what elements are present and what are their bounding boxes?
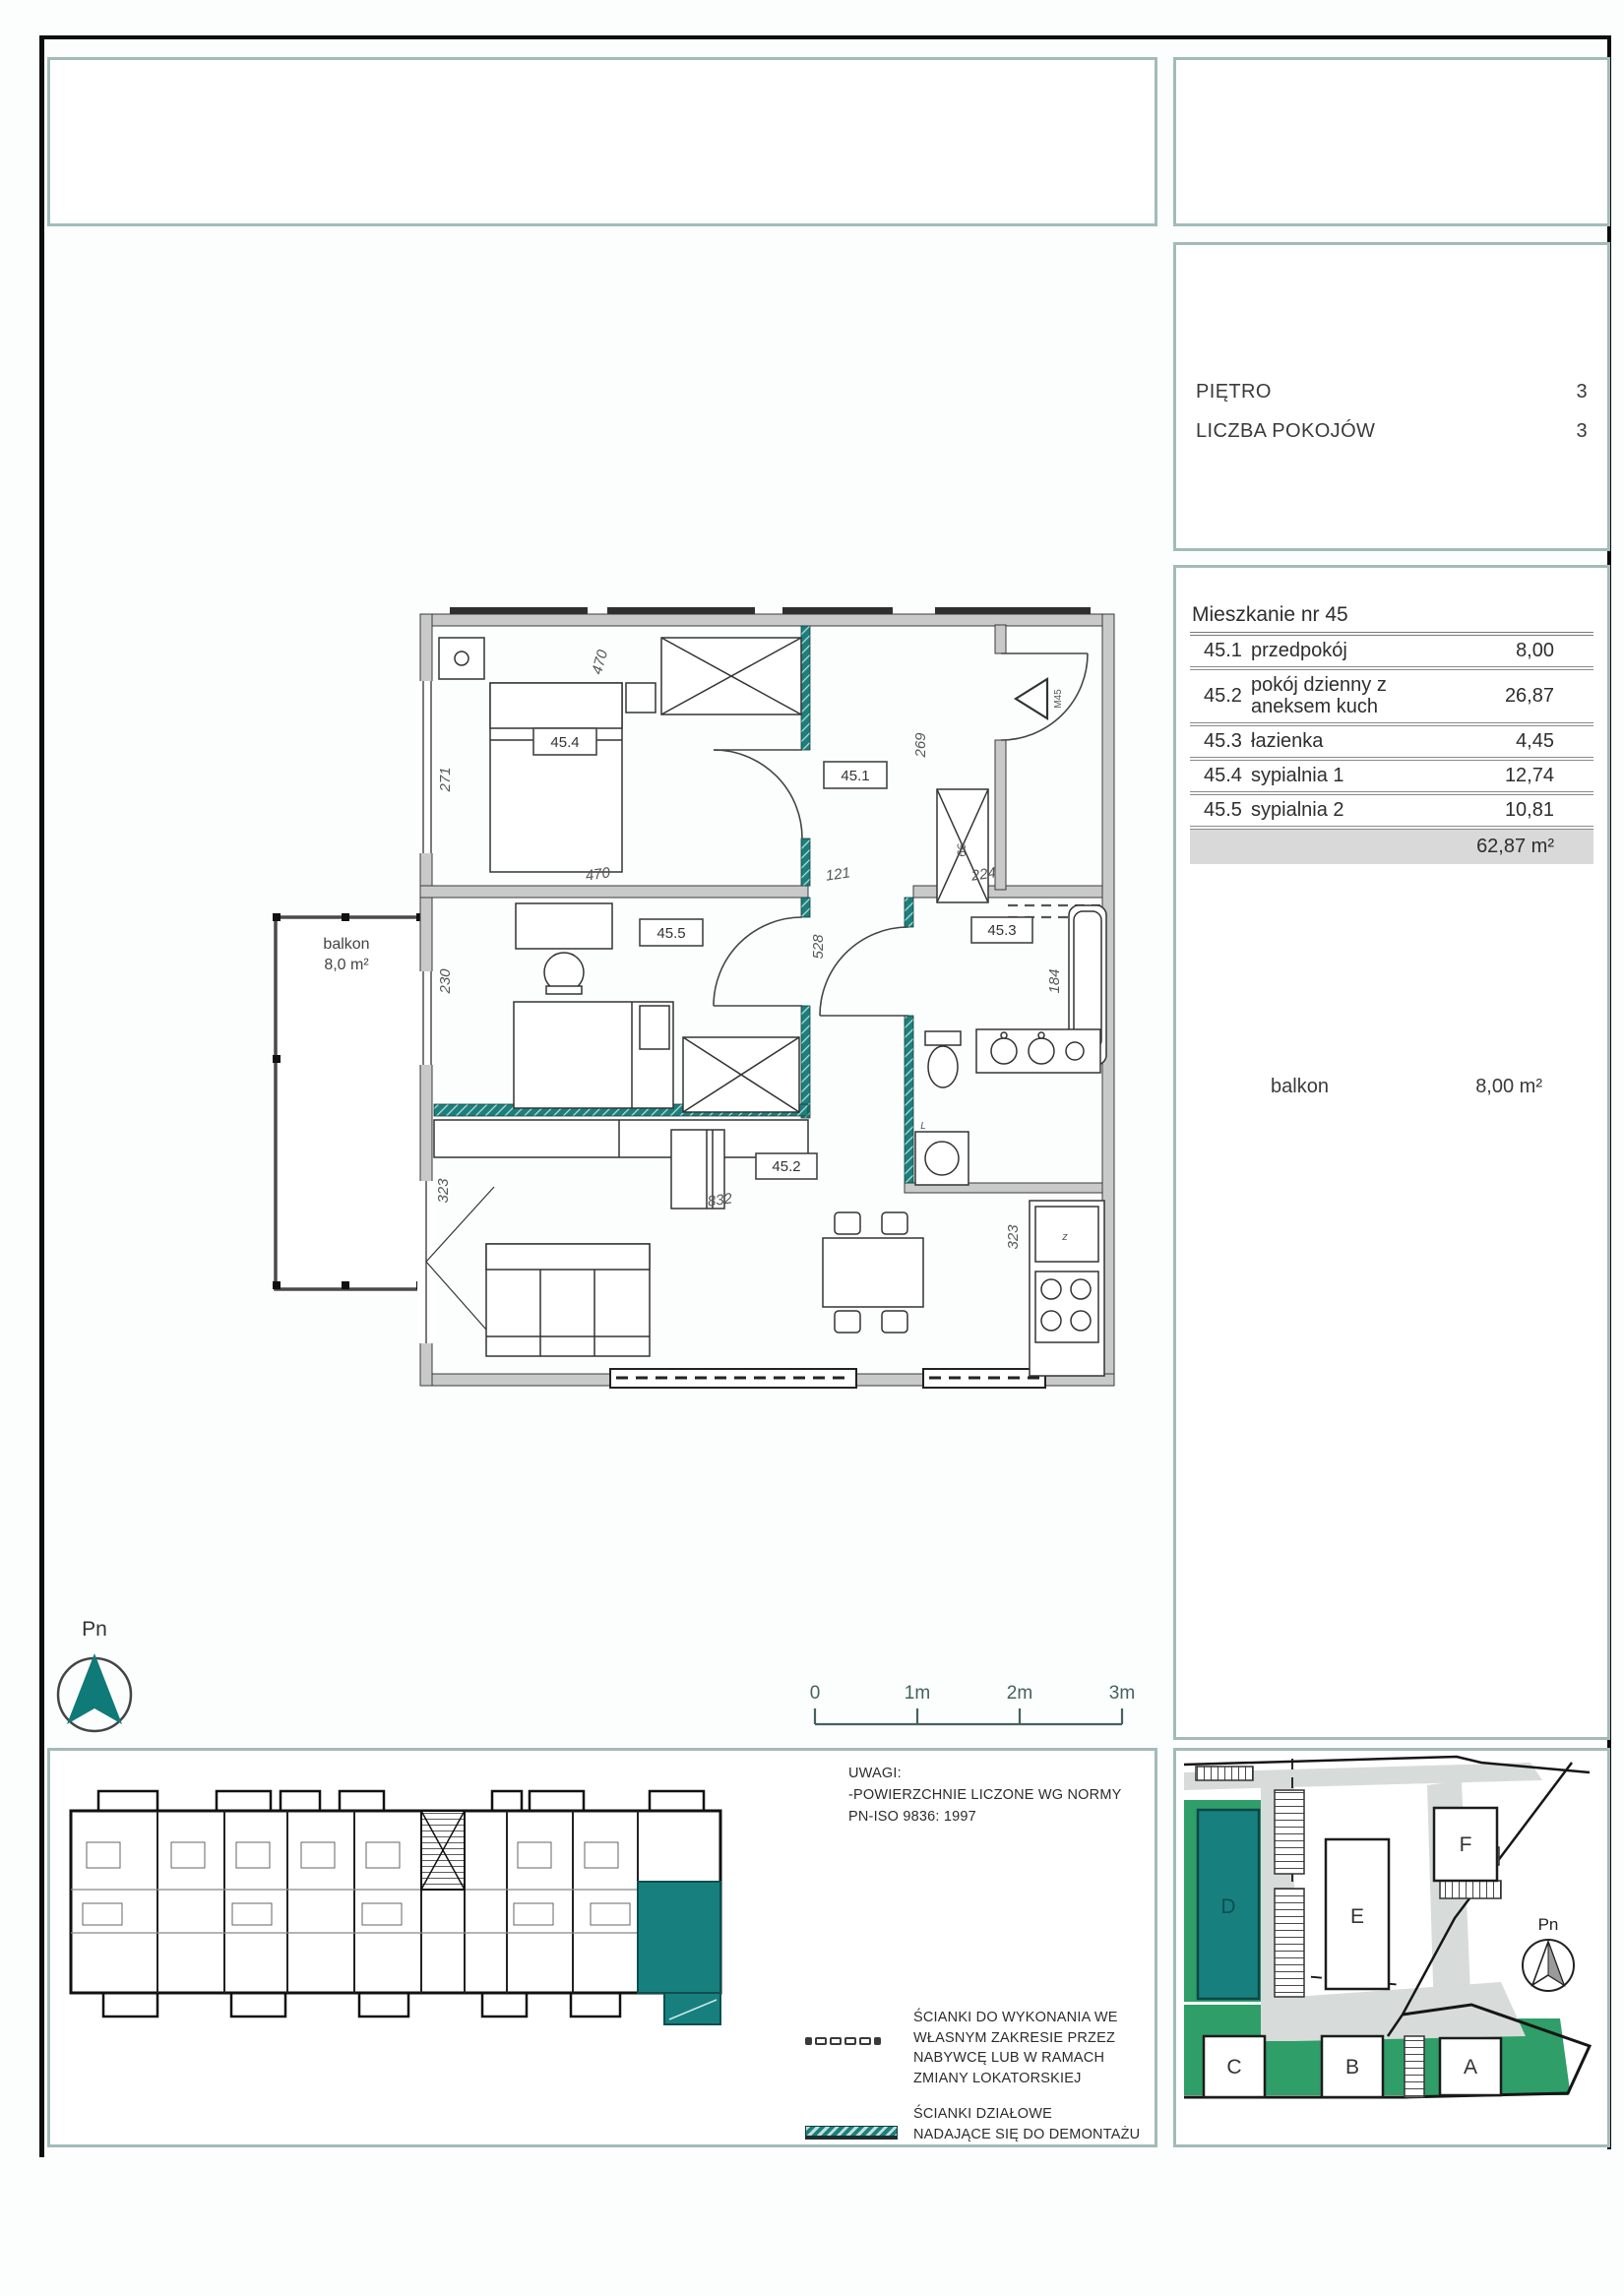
- page-frame-top: [39, 35, 1611, 39]
- room-label-45-1: 45.1: [841, 768, 869, 784]
- room-number: 45.2: [1190, 685, 1251, 708]
- scale-bar: 0 1m 2m 3m: [807, 1679, 1142, 1738]
- floor-label: PIĘTRO: [1196, 381, 1272, 403]
- bathroom-fixtures: [915, 905, 1106, 1185]
- rooms-count-label: LICZBA POKOJÓW: [1196, 420, 1375, 443]
- dim-230: 230: [437, 968, 454, 995]
- floor-row: PIĘTRO 3: [1196, 381, 1588, 403]
- dim-271: 271: [437, 767, 454, 792]
- dim-184: 184: [1046, 968, 1063, 993]
- balcony-size-label: 8,0 m²: [324, 957, 369, 973]
- room-area: 26,87: [1499, 685, 1593, 708]
- building-e-label: E: [1350, 1905, 1364, 1928]
- compass-label: Pn: [82, 1618, 107, 1641]
- info-panel: PIĘTRO 3 LICZBA POKOJÓW 3: [1173, 242, 1610, 551]
- balcony-label: balkon: [1271, 1076, 1329, 1098]
- bedroom1-furniture: [439, 638, 801, 872]
- room-name: sypialnia 2: [1251, 799, 1499, 821]
- notes-title: UWAGI:: [848, 1764, 1163, 1785]
- building-d-label: D: [1220, 1895, 1235, 1918]
- wall-legend: ŚCIANKI DO WYKONANIA WE WŁASNYM ZAKRESIE…: [805, 2008, 1159, 2160]
- legend-item-demountable-walls: ŚCIANKI DZIAŁOWE NADAJĄCE SIĘ DO DEMONTA…: [805, 2104, 1159, 2144]
- room-label-45-3: 45.3: [987, 922, 1016, 939]
- site-compass-label: Pn: [1538, 1915, 1559, 1934]
- apartment-title: Mieszkanie nr 45: [1190, 601, 1593, 636]
- floor-plan-sheet: { "info_panel": { "floor_label": "PIĘTRO…: [0, 0, 1624, 2296]
- building-a-label: A: [1464, 2056, 1477, 2079]
- building-f-label: F: [1460, 1833, 1472, 1856]
- north-compass: Pn: [43, 1610, 152, 1748]
- dim-470b: 470: [585, 864, 612, 884]
- room-number: 45.3: [1190, 730, 1251, 753]
- site-plan: D E F C B A Pn: [1176, 1751, 1607, 2144]
- entrance-label: M45: [1053, 689, 1064, 709]
- room-name: łazienka: [1251, 730, 1499, 752]
- room-area: 12,74: [1499, 765, 1593, 787]
- dashed-wall-icon: [805, 2008, 900, 2045]
- balcony-row: balkon 8,00 m²: [1271, 1076, 1542, 1098]
- legend-item-text: ŚCIANKI DZIAŁOWE NADAJĄCE SIĘ DO DEMONTA…: [913, 2104, 1140, 2144]
- top-wall-windows: [450, 607, 1091, 614]
- scale-2m: 2m: [1007, 1683, 1032, 1704]
- left-wall-windows: [417, 681, 494, 1343]
- dim-269: 269: [912, 732, 929, 759]
- room-number: 45.4: [1190, 765, 1251, 787]
- title-block-right: [1173, 57, 1610, 226]
- legend-item-owner-walls: ŚCIANKI DO WYKONANIA WE WŁASNYM ZAKRESIE…: [805, 2008, 1159, 2088]
- notes-block: UWAGI: -POWIERZCHNIE LICZONE WG NORMY PN…: [848, 1764, 1163, 1828]
- apartment-panel: Mieszkanie nr 45 45.1 przedpokój 8,00 45…: [1173, 565, 1610, 1740]
- balcony-name-label: balkon: [323, 936, 369, 953]
- bottom-wall-windows: [610, 1369, 1045, 1388]
- living-room-furniture: [434, 1120, 923, 1356]
- legend-item-text: ŚCIANKI DO WYKONANIA WE WŁASNYM ZAKRESIE…: [913, 2008, 1118, 2088]
- room-number: 45.1: [1190, 640, 1251, 662]
- floor-value: 3: [1576, 381, 1588, 403]
- page-frame-left: [39, 35, 44, 2157]
- room-number: 45.5: [1190, 799, 1251, 822]
- balcony-area: 8,00 m²: [1475, 1076, 1542, 1098]
- building-overview-plan: [59, 1783, 748, 2049]
- entrance-arrow: M45: [1016, 679, 1064, 718]
- table-row: 45.4 sypialnia 1 12,74: [1190, 761, 1593, 795]
- table-row: 45.1 przedpokój 8,00: [1190, 636, 1593, 670]
- kitchen-fixtures: [1030, 1201, 1104, 1376]
- room-label-45-4: 45.4: [550, 734, 579, 751]
- floor-plan-drawing: balkon 8,0 m²: [248, 592, 1139, 1395]
- teal-wall-icon: [805, 2104, 900, 2140]
- table-row: 45.3 łazienka 4,45: [1190, 726, 1593, 761]
- room-area: 8,00: [1499, 640, 1593, 662]
- total-area-row: 62,87 m²: [1190, 830, 1593, 864]
- apartment-table: Mieszkanie nr 45 45.1 przedpokój 8,00 45…: [1190, 601, 1593, 864]
- dim-323b: 323: [1005, 1224, 1022, 1250]
- room-name: przedpokój: [1251, 640, 1499, 661]
- dim-66: 66: [955, 843, 968, 857]
- scale-3m: 3m: [1109, 1683, 1135, 1704]
- rooms-count-row: LICZBA POKOJÓW 3: [1196, 420, 1588, 443]
- dim-528: 528: [810, 934, 827, 960]
- site-compass: Pn: [1523, 1915, 1574, 1991]
- title-block-left: [47, 57, 1157, 226]
- room-name: pokój dzienny z aneksem kuch: [1251, 674, 1499, 718]
- washer-label: L: [920, 1121, 926, 1132]
- dim-470a: 470: [589, 648, 611, 676]
- balcony: balkon 8,0 m²: [273, 913, 424, 1289]
- notes-body: -POWIERZCHNIE LICZONE WG NORMY PN-ISO 98…: [848, 1785, 1163, 1829]
- room-label-45-5: 45.5: [656, 925, 685, 942]
- scale-0: 0: [810, 1683, 821, 1704]
- room-area: 10,81: [1499, 799, 1593, 822]
- fridge-label: z: [1061, 1231, 1068, 1243]
- rooms-count-value: 3: [1576, 420, 1588, 443]
- building-c-label: C: [1226, 2056, 1241, 2079]
- room-area: 4,45: [1499, 730, 1593, 753]
- room-label-45-2: 45.2: [772, 1158, 800, 1175]
- building-b-label: B: [1345, 2056, 1359, 2079]
- room-name: sypialnia 1: [1251, 765, 1499, 786]
- dim-832: 832: [707, 1190, 734, 1210]
- table-row: 45.5 sypialnia 2 10,81: [1190, 795, 1593, 830]
- dim-224: 224: [969, 864, 997, 884]
- dim-323a: 323: [435, 1178, 452, 1204]
- dim-121: 121: [825, 864, 851, 884]
- table-row: 45.2 pokój dzienny z aneksem kuch 26,87: [1190, 670, 1593, 726]
- scale-1m: 1m: [905, 1683, 930, 1704]
- highlighted-unit: [638, 1882, 720, 2024]
